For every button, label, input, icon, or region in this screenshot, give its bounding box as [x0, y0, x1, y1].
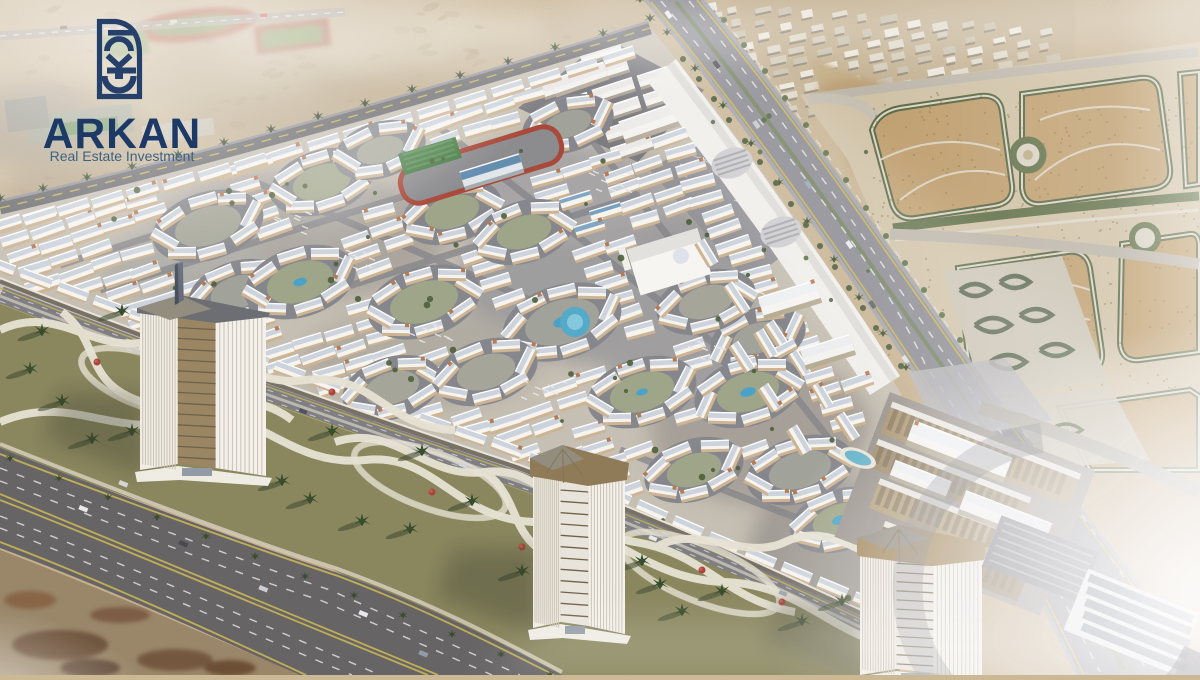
svg-text:Real Estate Investment: Real Estate Investment	[50, 148, 195, 164]
